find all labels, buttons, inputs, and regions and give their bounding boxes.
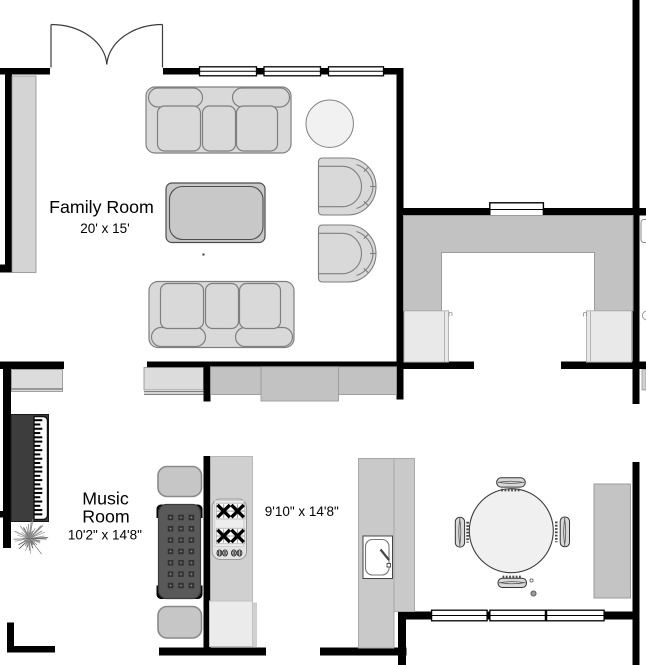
- svg-text:Music: Music: [82, 489, 129, 509]
- svg-text:20' x 15': 20' x 15': [80, 221, 129, 236]
- svg-text:10'2" x 14'8": 10'2" x 14'8": [68, 528, 142, 543]
- svg-text:Family Room: Family Room: [49, 197, 154, 217]
- svg-text:Room: Room: [82, 507, 129, 527]
- svg-text:9'10" x 14'8": 9'10" x 14'8": [265, 504, 339, 519]
